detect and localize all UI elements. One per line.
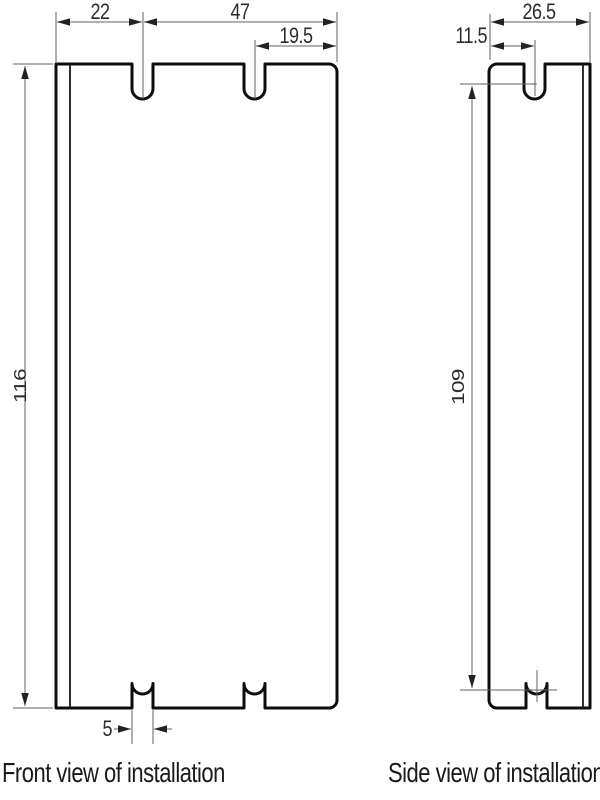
dim-text-5: 5 [102, 717, 112, 741]
dim-text-19-5: 19.5 [279, 24, 312, 48]
dim-text-26-5: 26.5 [522, 0, 555, 24]
side-view-dimensions [460, 12, 590, 702]
dim-text-109: 109 [449, 369, 468, 405]
technical-drawing-page: 22 47 19.5 116 5 26.5 11.5 109 [0, 0, 600, 800]
dim-text-11-5: 11.5 [455, 24, 487, 48]
installation-drawing: 22 47 19.5 116 5 26.5 11.5 109 [0, 0, 600, 800]
dim-text-116: 116 [11, 369, 30, 403]
front-view: 22 47 19.5 116 5 [11, 0, 337, 744]
side-view-label: Side view of installation [388, 758, 600, 789]
front-view-outline [56, 64, 337, 708]
front-view-dimensions [13, 12, 337, 744]
side-view-dimension-texts: 26.5 11.5 109 [449, 0, 556, 405]
dim-text-47: 47 [230, 0, 249, 24]
side-view: 26.5 11.5 109 [449, 0, 590, 708]
dim-text-22: 22 [90, 0, 109, 24]
front-view-label: Front view of installation [2, 758, 225, 789]
side-view-outline [489, 64, 590, 708]
